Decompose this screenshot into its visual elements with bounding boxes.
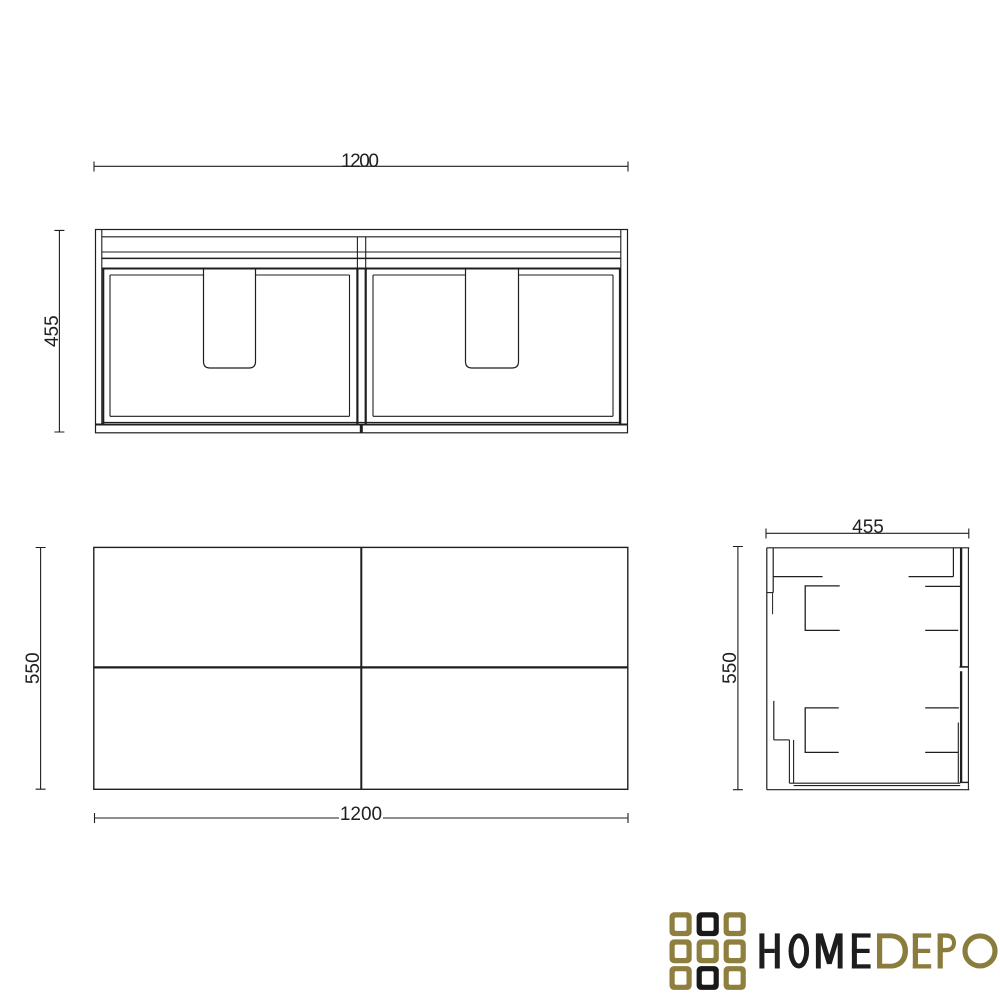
svg-text:550: 550	[23, 652, 44, 684]
svg-text:1200: 1200	[340, 804, 382, 825]
svg-text:550: 550	[720, 652, 741, 684]
svg-text:455: 455	[852, 517, 884, 538]
svg-text:455: 455	[42, 315, 63, 347]
svg-text:1200: 1200	[341, 151, 379, 172]
